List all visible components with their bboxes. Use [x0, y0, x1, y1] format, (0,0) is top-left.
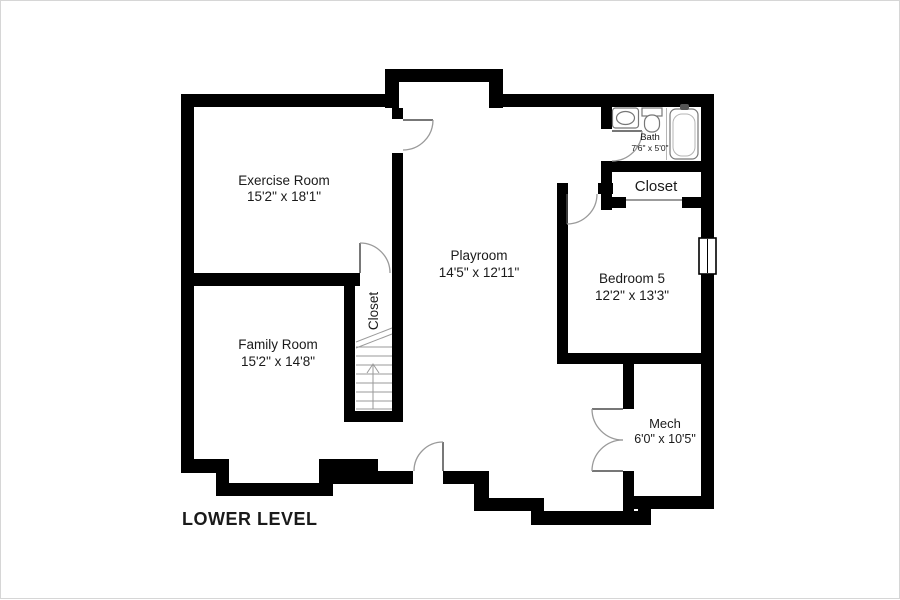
wall-segment [392, 108, 403, 119]
bedroom5-dims: 12'2" x 13'3" [595, 288, 669, 303]
mech-label: Mech [649, 416, 681, 431]
wall-segment [181, 273, 360, 286]
stairs-up-arrow [367, 364, 379, 409]
wall-segment [181, 94, 385, 107]
exercise-room-dims: 15'2" x 18'1" [247, 189, 321, 204]
family-room-label: Family Room [238, 337, 318, 352]
playroom-label: Playroom [450, 248, 507, 263]
wall-segment [601, 94, 612, 129]
bathtub-icon [670, 104, 698, 159]
family-room-dims: 15'2" x 14'8" [241, 354, 315, 369]
wall-segment [531, 511, 651, 525]
wall-segment [557, 353, 714, 364]
sink-icon [613, 108, 639, 128]
hall-closet-label: Closet [635, 178, 678, 195]
bedroom-window [699, 238, 716, 274]
floor-plan: Exercise Room 15'2" x 18'1" Playroom 14'… [0, 0, 900, 599]
exercise-room-door [403, 120, 433, 150]
wall-segment [623, 353, 634, 409]
stair-closet-door [360, 243, 390, 273]
mech-double-doors [592, 409, 623, 471]
wall-segment [371, 471, 413, 484]
wall-segment [601, 161, 612, 210]
wall-segment [682, 197, 701, 208]
wall-segment [634, 496, 714, 509]
bath-dims: 7'6" x 5'0" [631, 143, 668, 153]
bedroom5-label: Bedroom 5 [599, 271, 665, 286]
bedroom-door [567, 194, 597, 224]
wall-segment [701, 94, 714, 509]
floor-plan-drawing: Exercise Room 15'2" x 18'1" Playroom 14'… [1, 1, 900, 600]
wall-segment [385, 69, 503, 82]
wall-segment [344, 273, 355, 422]
wall-segment [216, 483, 333, 496]
faucet-icon [680, 104, 689, 110]
wall-segment [319, 459, 378, 484]
wall-segment [385, 69, 399, 108]
wall-segment [601, 161, 714, 172]
wall-segment [392, 153, 403, 422]
mech-dims: 6'0" x 10'5" [634, 432, 696, 446]
wall-segment [612, 197, 626, 208]
wall-segment [623, 471, 634, 513]
stair-closet-label: Closet [366, 292, 381, 331]
playroom-dims: 14'5" x 12'11" [439, 265, 520, 280]
wall-segment [344, 411, 403, 422]
staircase [356, 328, 392, 409]
bath-label: Bath [640, 132, 660, 143]
exercise-room-label: Exercise Room [238, 173, 330, 188]
toilet-icon [642, 108, 662, 132]
exterior-door [414, 442, 443, 471]
plan-title: LOWER LEVEL [182, 509, 318, 529]
